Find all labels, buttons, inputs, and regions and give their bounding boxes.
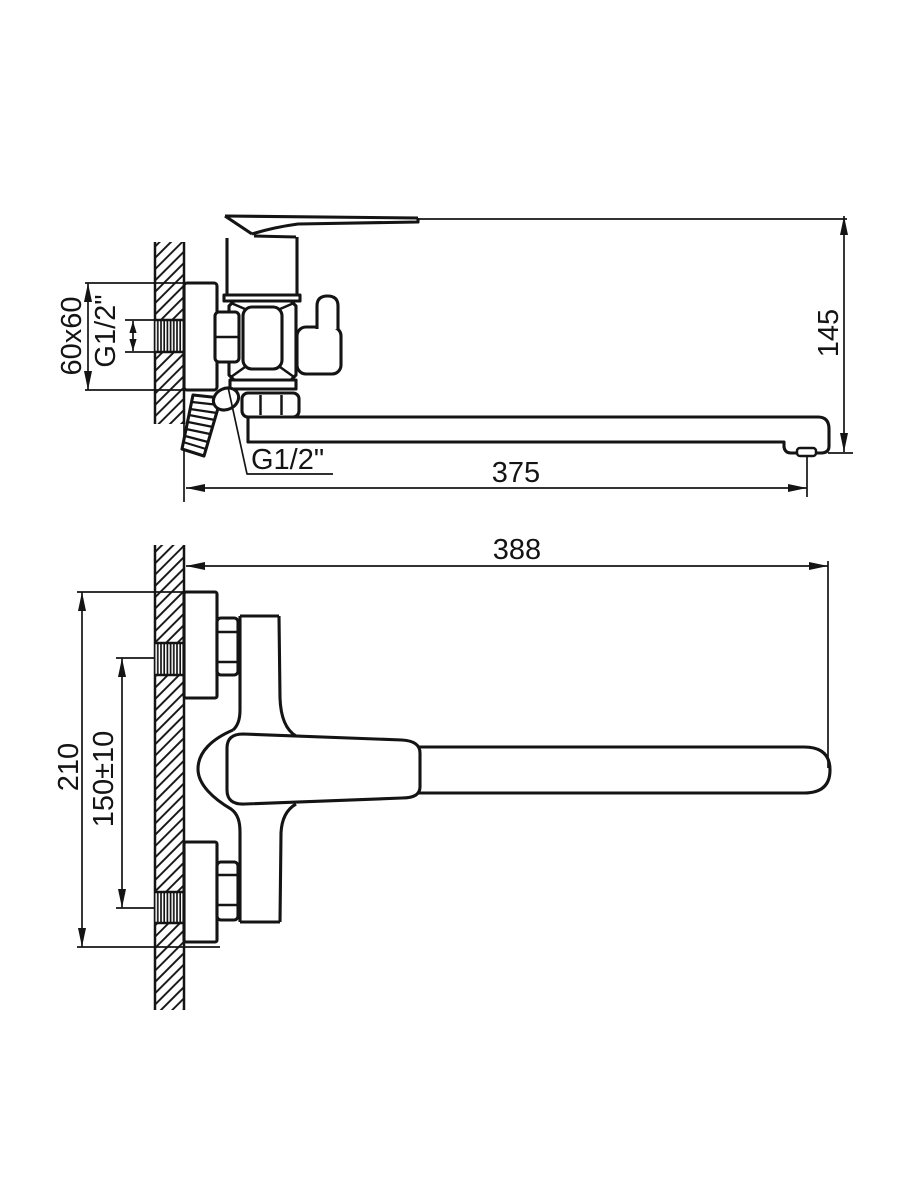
wall-section-hatch <box>155 545 184 1010</box>
dimension-length-388: 388 <box>186 534 828 768</box>
lever-handle <box>225 216 418 237</box>
plate-size-label: 60x60 <box>56 296 88 375</box>
lower-connection-nut <box>217 862 238 920</box>
cartridge-neck <box>224 237 300 301</box>
lower-thread <box>155 892 184 923</box>
upper-escutcheon <box>184 592 217 698</box>
drawing-page: 60x60 G1/2" <box>0 0 900 1200</box>
dimension-centers-150: 150±10 <box>88 658 155 908</box>
spout <box>248 417 829 453</box>
spout-reach-label: 375 <box>492 457 540 489</box>
diverter-knob <box>297 296 341 374</box>
spout <box>415 747 830 793</box>
shower-hose <box>182 384 242 456</box>
lever-handle-top <box>227 734 420 804</box>
aerator <box>797 448 816 456</box>
hole-centers-label: 150±10 <box>88 731 120 828</box>
upper-thread <box>155 643 184 675</box>
body-base-band <box>230 380 296 389</box>
lower-escutcheon <box>184 842 217 942</box>
side-view: 60x60 G1/2" <box>56 216 853 502</box>
overall-height-label: 210 <box>53 743 85 791</box>
overall-length-label: 388 <box>493 534 541 566</box>
faucet-dimension-drawing: 60x60 G1/2" <box>0 0 900 1200</box>
wall-connection-nut <box>215 312 239 362</box>
shower-thread-label: G1/2" <box>251 444 324 476</box>
dimension-wall-thread: G1/2" <box>90 294 155 367</box>
upper-connection-nut <box>217 618 238 675</box>
escutcheon-plate <box>184 283 217 390</box>
plan-view: 388 210 150±10 <box>53 534 830 1010</box>
height-label: 145 <box>813 309 845 357</box>
wall-section-hatch <box>155 242 184 502</box>
wall-thread-label: G1/2" <box>90 294 122 367</box>
spout-nut <box>242 393 299 417</box>
wall-thread-nipple <box>155 320 184 352</box>
